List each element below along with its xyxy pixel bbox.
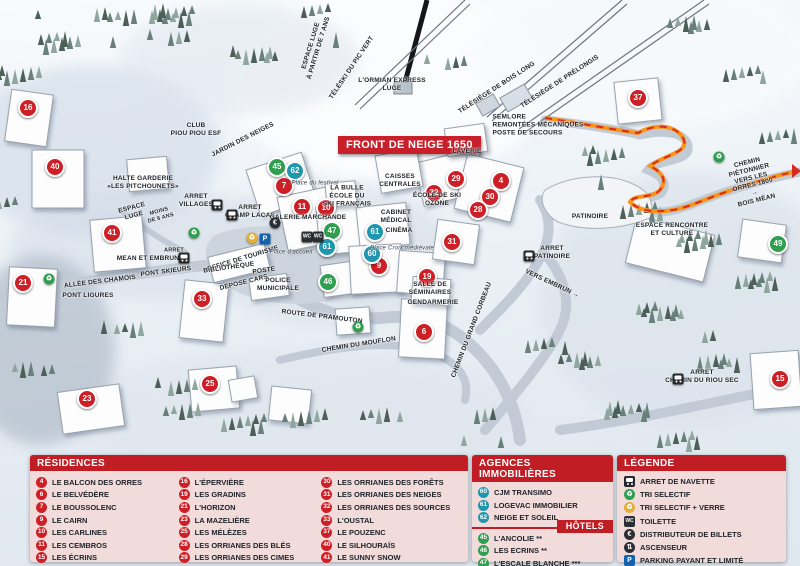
map-label: CAISSES CENTRALES [379,173,421,189]
bus-stop-icon [524,251,535,262]
map-label: CABINET MÉDICAL [380,209,411,225]
item-label: LE BALCON DES ORRES [52,478,142,487]
map-marker-15: 15 [770,369,790,389]
item-number-badge: 41 [321,552,332,563]
residences-title: RÉSIDENCES [30,455,468,471]
item-label: LES CARLINES [52,528,107,537]
item-label: LES ECRINS ** [494,546,547,555]
map-label: Place d'accueil [270,249,313,256]
item-number-badge: 7 [36,502,47,513]
list-item: 4LE BALCON DES ORRES [36,476,177,489]
map-marker-6: 6 [414,322,434,342]
legend-label: ASCENSEUR [640,543,687,552]
item-label: LES CEMBROS [52,541,107,550]
bus-stop-icon [212,200,223,211]
legend-item: ♻TRI SELECTIF [624,488,779,501]
map-marker-23: 23 [77,389,97,409]
item-number-badge: 46 [478,545,489,556]
map-marker-31: 31 [442,232,462,252]
list-item: 40LE SILHOURAÏS [321,539,462,552]
item-label: LES ORRIANES DES BLÉS [195,541,291,550]
map-label: LAVERIE [452,148,481,156]
legend-label: DISTRIBUTEUR DE BILLETS [640,530,742,539]
legend-label: PARKING PAYANT ET LIMITÉ [640,556,743,565]
list-item: 21L'HORIZON [179,501,320,514]
agencies-list: 60CJM TRANSIMO61LOGEVAC IMMOBILIER62NEIG… [472,482,613,524]
list-item: 60CJM TRANSIMO [478,486,607,499]
item-number-badge: 40 [321,540,332,551]
item-number-badge: 47 [478,558,489,566]
map-marker-28: 28 [468,200,488,220]
list-item: 61LOGEVAC IMMOBILIER [478,499,607,512]
item-number-badge: 28 [179,540,190,551]
item-label: L'ANCOLIE ** [494,534,542,543]
item-number-badge: 30 [321,477,332,488]
item-label: LE CAIRN [52,516,87,525]
map-marker-61: 61 [365,222,385,242]
list-item: 19LES GRADINS [179,489,320,502]
list-item: 9LE CAIRN [36,514,177,527]
legend-panel: LÉGENDE ARRET DE NAVETTE♻TRI SELECTIF♻TR… [617,455,786,562]
item-label: LE POUZENC [337,528,385,537]
list-item: 47L'ESCALE BLANCHE *** [478,557,607,566]
list-item: 10LES CARLINES [36,526,177,539]
legend-item: ⇅ASCENSEUR [624,541,779,554]
list-item: 46LES ECRINS ** [478,545,607,557]
hotels-list: 45L'ANCOLIE **46LES ECRINS **47L'ESCALE … [472,529,613,566]
item-number-badge: 32 [321,502,332,513]
map-label: L'ORMIAN EXPRESS LUGE [358,77,426,93]
list-item: 23LA MAZELIÈRE [179,514,320,527]
map-marker-49: 49 [768,234,788,254]
item-number-badge: 6 [36,489,47,500]
map-label: SEMLORE REMONTÉES MÉCANIQUES POSTE DE SE… [492,113,583,136]
list-item: 6LE BELVÉDÈRE [36,489,177,502]
legend-item: ♻TRI SELECTIF + VERRE [624,501,779,514]
map-marker-40: 40 [45,157,65,177]
recycling-icon: ♻ [44,274,55,285]
item-label: LES GRADINS [195,490,246,499]
map-marker-62: 62 [285,161,305,181]
map-marker-37: 37 [628,88,648,108]
recycling-glass-icon: ♻ [624,502,635,513]
item-number-badge: 61 [478,500,489,511]
bus-stop-icon [673,374,684,385]
legend-label: TRI SELECTIF [640,490,690,499]
residences-panel: RÉSIDENCES 4LE BALCON DES ORRES6LE BELVÉ… [30,455,468,562]
recycling-glass-icon: ♻ [247,233,258,244]
item-number-badge: 21 [179,502,190,513]
list-item: 29LES ORRIANES DES CIMES [179,552,320,565]
parking-icon: P [624,555,635,566]
map-label: SALLE DE SÉMINAIRES [409,281,451,297]
map-label: ARRET PATINOIRE [534,245,570,261]
recycling-icon: ♻ [624,489,635,500]
recycling-icon: ♻ [714,152,725,163]
item-number-badge: 15 [36,552,47,563]
item-number-badge: 60 [478,487,489,498]
map-label: PONT LIGURES [62,292,113,300]
item-label: LE SILHOURAÏS [337,541,395,550]
item-number-badge: 19 [179,489,190,500]
item-number-badge: 10 [36,527,47,538]
item-label: LES ORRIANES DES FORÊTS [337,478,443,487]
item-label: LE SUNNY SNOW [337,553,400,562]
item-number-badge: 31 [321,489,332,500]
list-item: 32LES ORRIANES DES SOURCES [321,501,462,514]
list-item: 30LES ORRIANES DES FORÊTS [321,476,462,489]
map-label: CLUB PIOU PIOU ESF [171,122,222,138]
item-number-badge: 29 [179,552,190,563]
item-number-badge: 23 [179,515,190,526]
hotels-section: HÔTELS 45L'ANCOLIE **46LES ECRINS **47L'… [472,527,613,566]
legend-item: €DISTRIBUTEUR DE BILLETS [624,528,779,541]
residences-list: 4LE BALCON DES ORRES6LE BELVÉDÈRE7LE BOU… [30,471,468,564]
list-item: 25LES MÉLÈZES [179,526,320,539]
item-label: L'ESCALE BLANCHE *** [494,559,580,566]
bus-stop-icon [624,476,635,487]
item-label: LES ÉCRINS [52,553,97,562]
recycling-icon: ♻ [353,322,364,333]
item-label: LES MÉLÈZES [195,528,247,537]
item-label: CJM TRANSIMO [494,488,552,497]
legend-label: TOILETTE [640,517,676,526]
agencies-hotels-panel: AGENCES IMMOBILIÈRES 60CJM TRANSIMO61LOG… [472,455,613,562]
item-label: LA MAZELIÈRE [195,516,250,525]
map-label: CINÉMA [386,227,413,235]
item-label: LES ORRIANES DES SOURCES [337,503,450,512]
map-label: ESPACE RENCONTRE ET CULTURE [636,222,708,238]
map-label: ÉCOLE DE SKI OZONE [413,192,461,208]
toilet-icon: WC [302,232,313,243]
map-label: POLICE MUNICIPALE [257,277,299,293]
map-label: HALTE GARDERIE «LES PITCHOUNETS» [107,175,179,191]
item-label: LE BELVÉDÈRE [52,490,109,499]
item-number-badge: 16 [179,477,190,488]
legend-label: TRI SELECTIF + VERRE [640,503,725,512]
list-item: 15LES ÉCRINS [36,552,177,565]
map-marker-29: 29 [446,169,466,189]
toilet-icon: WC [313,232,324,243]
item-number-badge: 45 [478,533,489,544]
list-item: 33L'OUSTAL [321,514,462,527]
hotels-title: HÔTELS [557,520,613,533]
item-label: LES ORRIANES DES NEIGES [337,490,441,499]
map-marker-16: 16 [18,98,38,118]
list-item: 11LES CEMBROS [36,539,177,552]
bus-stop-icon [179,253,190,264]
item-label: LOGEVAC IMMOBILIER [494,501,578,510]
list-item: 7LE BOUSSOLENC [36,501,177,514]
item-label: L'ÉPERVIÈRE [195,478,244,487]
elevator-icon: ⇅ [624,542,635,553]
item-label: L'HORIZON [195,503,236,512]
map-label: GALERIE MARCHANDE [270,214,347,222]
toilet-icon: WC [624,516,635,527]
item-number-badge: 25 [179,527,190,538]
map-label: PATINOIRE [572,213,608,221]
map-marker-21: 21 [13,273,33,293]
item-number-badge: 37 [321,527,332,538]
map-label: GENDARMERIE [408,299,459,307]
legend-item: PPARKING PAYANT ET LIMITÉ [624,554,779,566]
map-marker-41: 41 [102,223,122,243]
list-item: 41LE SUNNY SNOW [321,552,462,565]
recycling-icon: ♻ [189,228,200,239]
map-label: LA BULLE ÉCOLE DU SKI FRANÇAIS [323,184,372,207]
map-label: ARRET VILLAGES [179,193,213,209]
map-label: MEAN ET EMBRUN [117,255,179,263]
agencies-title: AGENCES IMMOBILIÈRES [472,455,613,482]
item-label: NEIGE ET SOLEIL [494,513,558,522]
legend-item: ARRET DE NAVETTE [624,475,779,488]
item-label: L'OUSTAL [337,516,374,525]
list-item: 45L'ANCOLIE ** [478,532,607,544]
item-label: LE BOUSSOLENC [52,503,117,512]
item-number-badge: 11 [36,540,47,551]
atm-euro-icon: € [270,218,281,229]
map-marker-33: 33 [192,289,212,309]
legend-title: LÉGENDE [617,455,786,471]
resort-map: FRONT DE NEIGE 1650 16404121332325711102… [0,0,800,566]
map-marker-46: 46 [318,272,338,292]
list-item: 28LES ORRIANES DES BLÉS [179,539,320,552]
list-item: 16L'ÉPERVIÈRE [179,476,320,489]
item-number-badge: 9 [36,515,47,526]
list-item: 31LES ORRIANES DES NEIGES [321,489,462,502]
legend-label: ARRET DE NAVETTE [640,477,715,486]
bus-stop-icon [227,210,238,221]
item-label: LES ORRIANES DES CIMES [195,553,295,562]
map-label: Place Croix médiévale [370,245,434,252]
atm-euro-icon: € [624,529,635,540]
legend-list: ARRET DE NAVETTE♻TRI SELECTIF♻TRI SELECT… [617,471,786,566]
item-number-badge: 33 [321,515,332,526]
item-number-badge: 4 [36,477,47,488]
item-number-badge: 62 [478,512,489,523]
legend-item: WCTOILETTE [624,515,779,528]
map-marker-45: 45 [267,157,287,177]
parking-icon: P [260,234,271,245]
list-item: 37LE POUZENC [321,526,462,539]
map-marker-25: 25 [200,374,220,394]
